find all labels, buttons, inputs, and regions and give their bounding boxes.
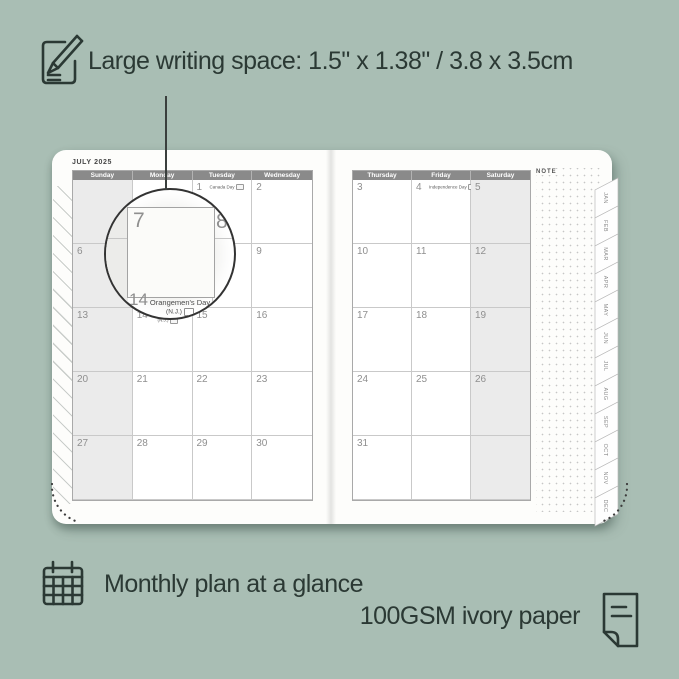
tab-jul: JUL [602,361,608,372]
tab-mar: MAR [602,247,608,260]
calendar-cell: 2 [252,180,312,244]
calendar-cell: 17 [353,308,412,372]
tab-oct: OCT [602,444,608,457]
calendar-cell [471,436,530,500]
holiday-label: Independence Day [429,184,476,191]
calendar-cell: 30 [252,436,312,500]
calendar-cell: 21 [133,372,193,436]
pencil-note-icon [34,32,84,90]
tab-sep: SEP [602,416,608,428]
calendar-cell: 26 [471,372,530,436]
tab-feb: FEB [602,220,608,232]
calendar-cell: 28 [133,436,193,500]
holiday-label: Canada Day [210,184,245,191]
magnified-shaded-column [106,190,128,318]
product-image-canvas: { "colors": { "background": "#a9beb4", "… [0,0,679,679]
calendar-cell: 24 [353,372,412,436]
calendar-cell: 18 [412,308,471,372]
calendar-cell: 4 Independence Day [412,180,471,244]
calendar-cell: 5 [471,180,530,244]
calendar-cell: 15 [193,308,253,372]
month-title: JULY 2025 [72,159,112,166]
magnified-date: 7 [133,209,145,233]
month-tabs: JAN FEB MAR APR MAY JUN JUL AUG SEP OCT … [594,176,620,530]
magnifier-circle: 7 8 14 Orangemen's Day (N.J.) [104,188,236,320]
calendar-table-right: Thursday Friday Saturday 3 4 Independenc… [352,170,531,501]
weekday-header-row: Sunday Monday Tuesday Wednesday [73,171,312,180]
magnified-holiday-label: Orangemen's Day (N.J.) [144,298,216,316]
calendar-cell: 9 [252,244,312,308]
calendar-cell: 29 [193,436,253,500]
magnifier-pointer-line [165,96,167,190]
calendar-cell: 22 [193,372,253,436]
paper-caption: 100GSM ivory paper [360,602,580,631]
calendar-cell: 23 [252,372,312,436]
calendar-cell: 20 [73,372,133,436]
monthly-plan-caption: Monthly plan at a glance [104,570,363,599]
perforation-corner-left [50,483,90,523]
calendar-cell: 3 [353,180,412,244]
holiday-flag-icon [184,308,194,316]
calendar-cell [412,436,471,500]
note-label: NOTE [536,169,559,175]
paper-sheet-icon [597,589,643,651]
writing-space-caption: Large writing space: 1.5" x 1.38" / 3.8 … [88,47,573,76]
calendar-cell: 19 [471,308,530,372]
calendar-body: 3 4 Independence Day 5 10 11 12 17 18 19… [353,180,530,500]
tab-jan: JAN [602,192,608,204]
calendar-cell: 11 [412,244,471,308]
calendar-cell: 31 [353,436,412,500]
calendar-grid-icon [40,559,86,609]
calendar-cell: 10 [353,244,412,308]
tab-jun: JUN [602,332,608,344]
page-edge-hatching [53,186,72,504]
calendar-cell: 12 [471,244,530,308]
weekday-header-row: Thursday Friday Saturday [353,171,530,180]
tab-may: MAY [602,304,608,317]
perforation-corner-right [589,483,629,523]
planner-spread: JULY 2025 Sunday Monday Tuesday Wednesda… [52,150,612,524]
holiday-flag-icon [236,184,244,191]
tab-aug: AUG [602,387,608,400]
magnified-date: 8 [216,210,228,234]
tab-apr: APR [602,276,608,289]
page-fold [326,150,336,524]
calendar-cell: 25 [412,372,471,436]
calendar-cell: 16 [252,308,312,372]
note-dot-grid [536,168,600,512]
